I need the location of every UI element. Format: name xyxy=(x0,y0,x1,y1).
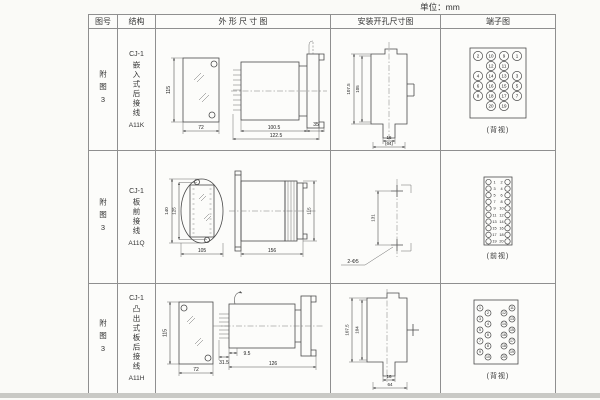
svg-text:8: 8 xyxy=(477,94,480,99)
svg-text:3: 3 xyxy=(493,186,495,190)
svg-text:20: 20 xyxy=(499,239,503,243)
svg-text:14: 14 xyxy=(502,322,506,326)
outline-drawing-a11h: 115 72 31.5 9.5 126 xyxy=(157,284,330,393)
terminal-view-label-1: (背视) xyxy=(487,125,510,135)
svg-text:1: 1 xyxy=(479,306,481,310)
svg-text:9: 9 xyxy=(479,350,481,354)
svg-text:2: 2 xyxy=(500,180,502,184)
svg-text:19: 19 xyxy=(501,104,507,109)
svg-text:19: 19 xyxy=(492,239,496,243)
svg-text:17: 17 xyxy=(501,94,507,99)
fig-no-3: 附图3 xyxy=(98,319,109,358)
dim-flange-1: 35 xyxy=(313,122,319,128)
svg-text:12: 12 xyxy=(488,64,494,69)
cell-outline-2: 140 125 105 156 115 xyxy=(156,151,331,284)
svg-text:2: 2 xyxy=(477,54,480,59)
svg-text:19: 19 xyxy=(510,350,514,354)
dim-slot-span-3: 64 xyxy=(387,382,393,387)
cell-struct-1: CJ-1 嵌入式后接线 A11K xyxy=(118,29,156,151)
dim-front-width-3: 72 xyxy=(193,367,199,373)
cell-outline-3: 115 72 31.5 9.5 126 xyxy=(156,284,331,394)
dim-gap-3: 9.5 xyxy=(243,351,250,357)
front-view-a11q: 140 125 105 xyxy=(164,179,223,257)
dim-depth-total-1: 122.5 xyxy=(269,133,282,139)
svg-text:13: 13 xyxy=(510,317,514,321)
terminal-view-label-3: (背视) xyxy=(487,371,510,381)
svg-text:2: 2 xyxy=(487,311,489,315)
svg-text:12: 12 xyxy=(502,311,506,315)
svg-text:9: 9 xyxy=(503,54,506,59)
svg-text:12: 12 xyxy=(499,213,503,217)
svg-text:15: 15 xyxy=(510,328,514,332)
header-structure: 结构 xyxy=(118,15,156,29)
cell-outline-1: 115 72 100.5 122.5 35 xyxy=(156,29,331,151)
svg-text:5: 5 xyxy=(479,328,481,332)
code-3: A11H xyxy=(129,375,145,382)
terminal-dots xyxy=(192,189,211,233)
svg-text:9: 9 xyxy=(493,206,495,210)
svg-text:10: 10 xyxy=(499,206,503,210)
svg-text:5: 5 xyxy=(493,193,495,197)
svg-text:1: 1 xyxy=(516,54,519,59)
svg-text:17: 17 xyxy=(492,233,496,237)
dim-slot-span-1: (64) xyxy=(385,141,394,146)
cell-struct-2: CJ-1 板前接线 A11Q xyxy=(118,151,156,284)
svg-text:14: 14 xyxy=(488,74,494,79)
front-view-a11h: 115 72 xyxy=(162,302,213,376)
svg-text:14: 14 xyxy=(499,219,503,223)
svg-text:18: 18 xyxy=(488,94,494,99)
svg-text:7: 7 xyxy=(493,200,495,204)
dim-front-height-3: 115 xyxy=(162,329,168,337)
terminal-drawing-front: 1234567891011121314151617181920 xyxy=(476,174,520,248)
dim-houter-2: 140 xyxy=(164,207,169,215)
page: { "unit_label": "单位：mm", "header": { "co… xyxy=(0,0,600,400)
code-2: A11Q xyxy=(128,240,144,247)
svg-text:7: 7 xyxy=(516,94,519,99)
cell-fig-3: 附图3 xyxy=(89,284,118,394)
cell-terminal-2: 1234567891011121314151617181920 (前视) xyxy=(441,151,556,284)
svg-text:7: 7 xyxy=(479,339,481,343)
svg-text:16: 16 xyxy=(499,226,503,230)
svg-text:11: 11 xyxy=(510,306,514,310)
svg-text:20: 20 xyxy=(488,104,494,109)
terminal-circles-back: 2109112114141336161558181772019 xyxy=(473,51,521,110)
svg-text:17: 17 xyxy=(510,339,514,343)
fig-no-1: 附图3 xyxy=(98,70,109,109)
dim-mount-hinner-1: 105 xyxy=(355,84,360,92)
mount-drawing-a11q: 131 2-Φ5 xyxy=(331,151,440,283)
svg-text:3: 3 xyxy=(516,74,519,79)
dim-slot-width-3: 16 xyxy=(386,374,392,379)
svg-text:20: 20 xyxy=(502,355,506,359)
svg-text:6: 6 xyxy=(500,193,502,197)
svg-text:10: 10 xyxy=(486,355,490,359)
header-mount: 安装开孔尺寸图 xyxy=(331,15,441,29)
svg-text:8: 8 xyxy=(487,344,489,348)
terminal-drawing-back: 2109112114141336161558181772019 xyxy=(465,44,531,122)
cell-terminal-3: 1357924681012141618201113151719 (背视) xyxy=(441,284,556,394)
unit-label: 单位：mm xyxy=(408,1,472,13)
mount-drawing-a11h: 107.5 104 16 64 xyxy=(331,284,440,393)
model-2: CJ-1 xyxy=(129,188,144,195)
svg-text:4: 4 xyxy=(500,186,502,190)
dim-mount-houter-3: 107.5 xyxy=(345,324,350,336)
svg-text:6: 6 xyxy=(487,333,489,337)
structure-name-2: 板前接线 xyxy=(131,198,142,236)
svg-text:6: 6 xyxy=(477,84,480,89)
dim-front-height-1: 115 xyxy=(166,85,172,93)
model-1: CJ-1 xyxy=(129,51,144,58)
mount-drawing-a11k: 107.5 105 16 (64) xyxy=(331,30,440,150)
cell-mount-2: 131 2-Φ5 xyxy=(331,151,441,284)
dim-depth-inner-1: 100.5 xyxy=(267,125,280,131)
hole-label-2: 2-Φ5 xyxy=(347,259,358,265)
svg-text:18: 18 xyxy=(502,344,506,348)
svg-text:4: 4 xyxy=(487,322,489,326)
side-view-a11k: 100.5 122.5 35 xyxy=(231,41,327,140)
svg-text:15: 15 xyxy=(492,226,496,230)
side-view-a11q: 156 115 xyxy=(229,171,317,257)
dim-width-2: 105 xyxy=(197,248,206,254)
dim-depth-3: 126 xyxy=(268,361,277,367)
model-3: CJ-1 xyxy=(129,295,144,302)
structure-name-1: 嵌入式后接线 xyxy=(131,61,142,118)
page-edge-strip xyxy=(0,393,600,398)
spec-table: 图号 结构 外 形 尺 寸 图 安装开孔尺寸图 端子图 附图3 CJ-1 嵌入式… xyxy=(88,14,556,394)
svg-text:15: 15 xyxy=(501,84,507,89)
dim-front-width-1: 72 xyxy=(198,125,204,131)
header-terminal: 端子图 xyxy=(441,15,556,29)
svg-text:16: 16 xyxy=(502,333,506,337)
svg-text:13: 13 xyxy=(501,74,507,79)
terminal-circles-back2: 1357924681012141618201113151719 xyxy=(477,305,515,360)
dim-side-height-2: 115 xyxy=(306,207,311,215)
svg-text:16: 16 xyxy=(488,84,494,89)
svg-text:11: 11 xyxy=(502,64,507,69)
header-fig-no: 图号 xyxy=(89,15,118,29)
dim-mount-hinner-3: 104 xyxy=(355,326,360,334)
fig-no-2: 附图3 xyxy=(98,198,109,237)
terminal-drawing-back2: 1357924681012141618201113151719 xyxy=(469,296,527,368)
cell-fig-2: 附图3 xyxy=(89,151,118,284)
side-view-a11h: 31.5 9.5 126 xyxy=(213,293,323,370)
svg-text:5: 5 xyxy=(516,84,519,89)
dim-mount-houter-1: 107.5 xyxy=(346,82,351,94)
dim-pin-depth-3: 31.5 xyxy=(219,360,229,366)
dim-slot-width-1: 16 xyxy=(386,135,392,140)
cell-mount-3: 107.5 104 16 64 xyxy=(331,284,441,394)
dim-hole-pitch-2: 131 xyxy=(371,214,376,222)
svg-text:3: 3 xyxy=(479,317,481,321)
cell-struct-3: CJ-1 凸出式板后接线 A11H xyxy=(118,284,156,394)
svg-text:4: 4 xyxy=(477,74,480,79)
code-1: A11K xyxy=(129,122,144,129)
terminal-view-label-2: (前视) xyxy=(487,251,510,261)
header-outline: 外 形 尺 寸 图 xyxy=(156,15,331,29)
dim-depth-2: 156 xyxy=(267,248,276,254)
svg-text:1: 1 xyxy=(493,180,495,184)
cell-terminal-1: 2109112114141336161558181772019 (背视) xyxy=(441,29,556,151)
outline-drawing-a11k: 115 72 100.5 122.5 35 xyxy=(157,30,330,150)
svg-text:13: 13 xyxy=(492,219,496,223)
structure-name-3: 凸出式板后接线 xyxy=(131,305,142,372)
svg-text:8: 8 xyxy=(500,200,502,204)
svg-text:11: 11 xyxy=(493,213,497,217)
cell-mount-1: 107.5 105 16 (64) xyxy=(331,29,441,151)
terminal-circles-front: 1234567891011121314151617181920 xyxy=(486,179,510,244)
dim-hinner-2: 125 xyxy=(171,207,176,215)
svg-text:10: 10 xyxy=(488,54,494,59)
svg-text:18: 18 xyxy=(499,233,503,237)
front-view-a11k: 115 72 xyxy=(166,58,219,134)
cell-fig-1: 附图3 xyxy=(89,29,118,151)
outline-drawing-a11q: 140 125 105 156 115 xyxy=(157,151,330,283)
